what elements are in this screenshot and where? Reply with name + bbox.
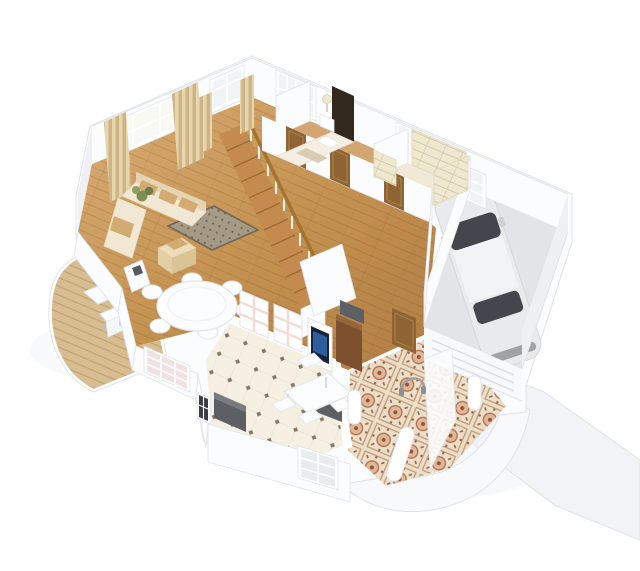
table-lamp (323, 95, 332, 104)
floor-plan-render (0, 0, 640, 571)
stair-curtain (240, 74, 254, 134)
floor-plan-canvas (0, 0, 640, 571)
round-dining-table (157, 281, 237, 331)
porch-pillar (348, 390, 361, 424)
porch-pillar (468, 376, 481, 410)
small-dark-window (197, 392, 210, 424)
